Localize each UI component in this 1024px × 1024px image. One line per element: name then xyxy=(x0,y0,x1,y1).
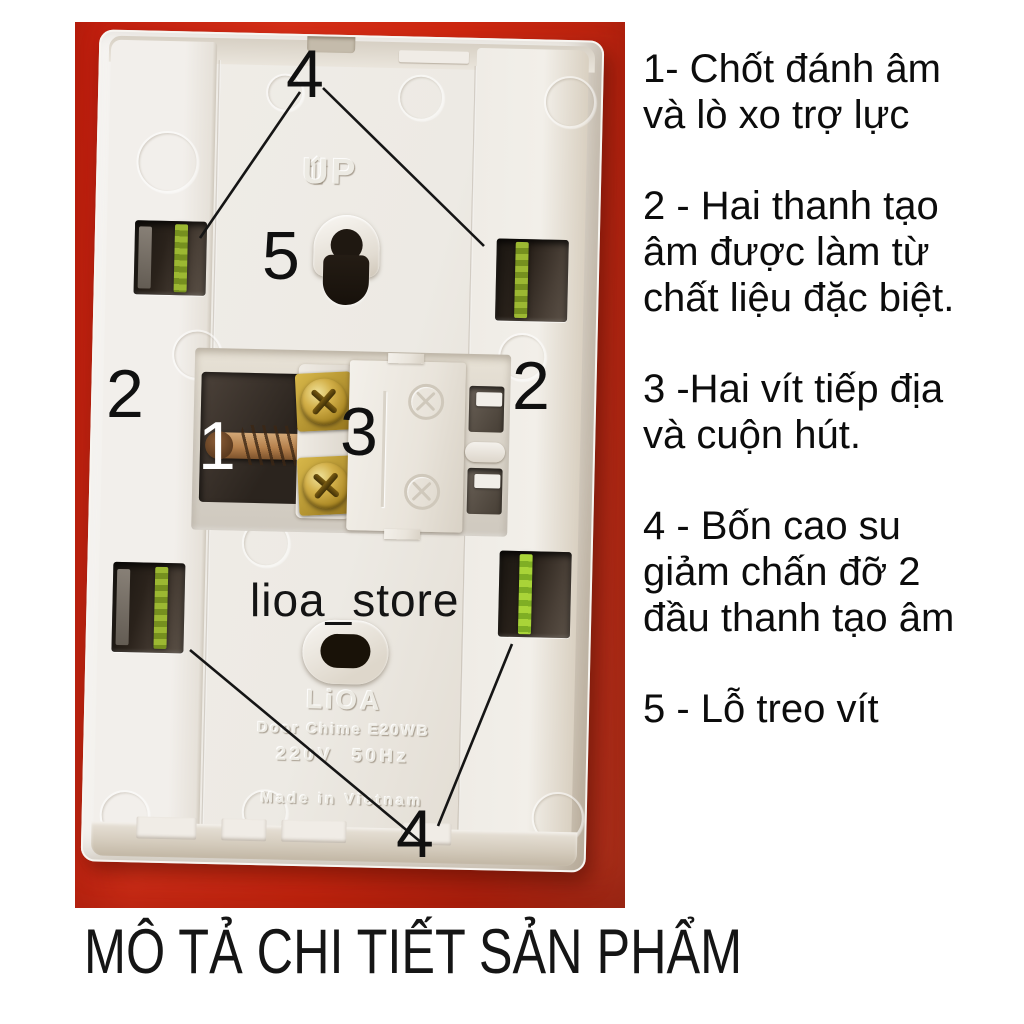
bottom-edge-notch xyxy=(136,816,196,839)
callout-number-2-left: 2 xyxy=(106,360,144,428)
bottom-screw-hole xyxy=(320,634,371,669)
sound-bar-hole-top-left xyxy=(134,220,208,296)
callout-number-2-right: 2 xyxy=(512,352,550,420)
callout-number-4-top: 4 xyxy=(286,40,324,108)
wiring-diagram-line xyxy=(381,391,387,507)
brand-marking: LiOA xyxy=(234,683,455,719)
hole-inner-wall xyxy=(137,226,152,288)
legend-item-5: 5 - Lỗ treo vít xyxy=(643,686,1019,732)
callout-number-3: 3 xyxy=(340,398,378,466)
sound-bar-hole-bottom-left xyxy=(111,562,185,654)
cover-tab xyxy=(388,353,424,364)
page-title: MÔ TẢ CHI TIẾT SẢN PHẨM xyxy=(84,916,742,988)
legend: 1- Chốt đánh âm và lò xo trợ lực 2 - Hai… xyxy=(643,46,1019,732)
hole-inner-wall xyxy=(115,569,130,645)
keyhole-slot xyxy=(322,255,369,306)
sound-bar xyxy=(153,566,168,649)
clip-bar xyxy=(465,442,505,463)
sound-bar xyxy=(173,224,188,292)
circuit-symbol-icon xyxy=(408,383,445,420)
sound-bar xyxy=(514,242,529,318)
top-edge-tab xyxy=(399,50,469,64)
model-marking: Door Chime E20WB xyxy=(224,718,464,740)
legend-item-2: 2 - Hai thanh tạo âm được làm từ chất li… xyxy=(643,183,1019,321)
callout-number-1: 1 xyxy=(198,412,236,480)
clip-tab xyxy=(474,474,500,489)
up-marking: UP⇧ xyxy=(302,150,333,193)
clip-window xyxy=(468,386,504,433)
clip-tab xyxy=(476,392,502,407)
clip-window xyxy=(467,468,503,515)
store-watermark: lioa_store xyxy=(250,573,459,627)
sound-bar-hole-bottom-right xyxy=(498,551,572,639)
bottom-edge-notch xyxy=(281,820,346,843)
mount-clips xyxy=(463,366,509,527)
callout-number-4-bottom: 4 xyxy=(396,800,434,868)
sound-bar xyxy=(518,554,533,633)
cover-tab xyxy=(384,529,420,540)
product-annotation-image: UP⇧ xyxy=(0,0,1024,1024)
power-rating-marking: 220V 50Hz xyxy=(223,742,463,768)
sound-bar-hole-top-right xyxy=(495,238,569,322)
up-label: UP xyxy=(302,150,359,193)
legend-item-1: 1- Chốt đánh âm và lò xo trợ lực xyxy=(643,46,1019,138)
circuit-symbol-icon xyxy=(404,473,441,510)
support-spring xyxy=(241,425,304,466)
legend-item-4: 4 - Bốn cao su giảm chấn đỡ 2 đầu thanh … xyxy=(643,503,1019,641)
knockout-circle xyxy=(398,74,445,121)
legend-item-3: 3 -Hai vít tiếp địa và cuộn hút. xyxy=(643,366,1019,458)
knockout-circle xyxy=(543,75,596,128)
callout-number-5: 5 xyxy=(262,222,300,290)
bottom-edge-notch xyxy=(221,818,266,841)
